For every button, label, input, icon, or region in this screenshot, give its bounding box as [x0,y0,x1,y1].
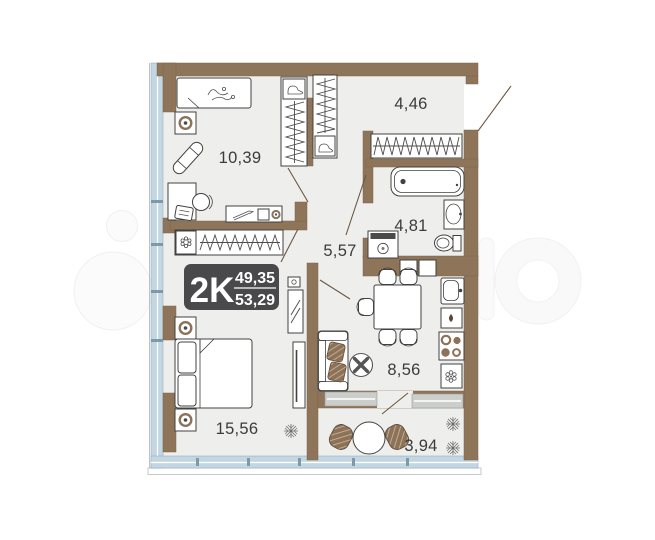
bed-double-icon [175,339,252,408]
speaker-icon [175,112,196,134]
sofa-icon [318,331,348,391]
watermark-letter-o-hole [517,260,559,302]
cabinet-flower-icon [441,364,462,388]
room-area-label: 4,46 [394,95,427,113]
toilet-icon [435,235,462,251]
speaker-icon [175,317,196,339]
glazing-left [151,63,163,468]
plant-icon [446,441,460,455]
stove-icon [439,332,464,360]
bathtub-icon [391,167,464,196]
closet-right [313,75,337,158]
room-area-label: 4,81 [394,217,427,235]
kitchen-sink-icon [441,278,464,304]
room-area-label: 3,94 [404,437,437,455]
dresser-icon [226,206,282,222]
ceiling-light-icon [350,354,373,377]
area-badge: 2K 49,35 53,29 [184,264,279,310]
balcony-table-icon [353,422,385,454]
coat-rack-icon [371,134,462,158]
plant-icon [446,417,460,431]
room-area-label: 10,39 [219,149,262,167]
badge-rooms-type: 2K [190,271,235,310]
closet-left [281,77,307,166]
window-sill [412,394,463,408]
window-sill [325,392,377,406]
sink-icon [444,200,464,229]
tv-stand-icon [293,342,305,408]
bed-single-icon [177,78,251,108]
floorplan-screenshot: 10,39 4,46 [0,0,655,540]
watermark-letter-t [479,238,494,320]
washing-machine-icon [368,231,398,258]
badge-lower-area: 53,29 [235,292,275,309]
room-area-label: 8,56 [387,361,420,379]
speaker-icon [175,409,196,431]
wardrobe-icon [175,230,283,255]
room-area-label: 5,57 [323,242,356,260]
floor-plan: 10,39 4,46 [0,0,655,540]
room-area-label: 15,56 [216,420,259,438]
entrance-door-line [478,86,511,131]
bag-icon [175,205,194,221]
watermark-circle-small [107,211,138,242]
watermark-circle-big [74,252,152,330]
entrance-opening [464,84,478,131]
cabinet-icon [441,308,462,328]
badge-upper-area: 49,35 [235,270,275,287]
plant-icon [284,424,298,438]
